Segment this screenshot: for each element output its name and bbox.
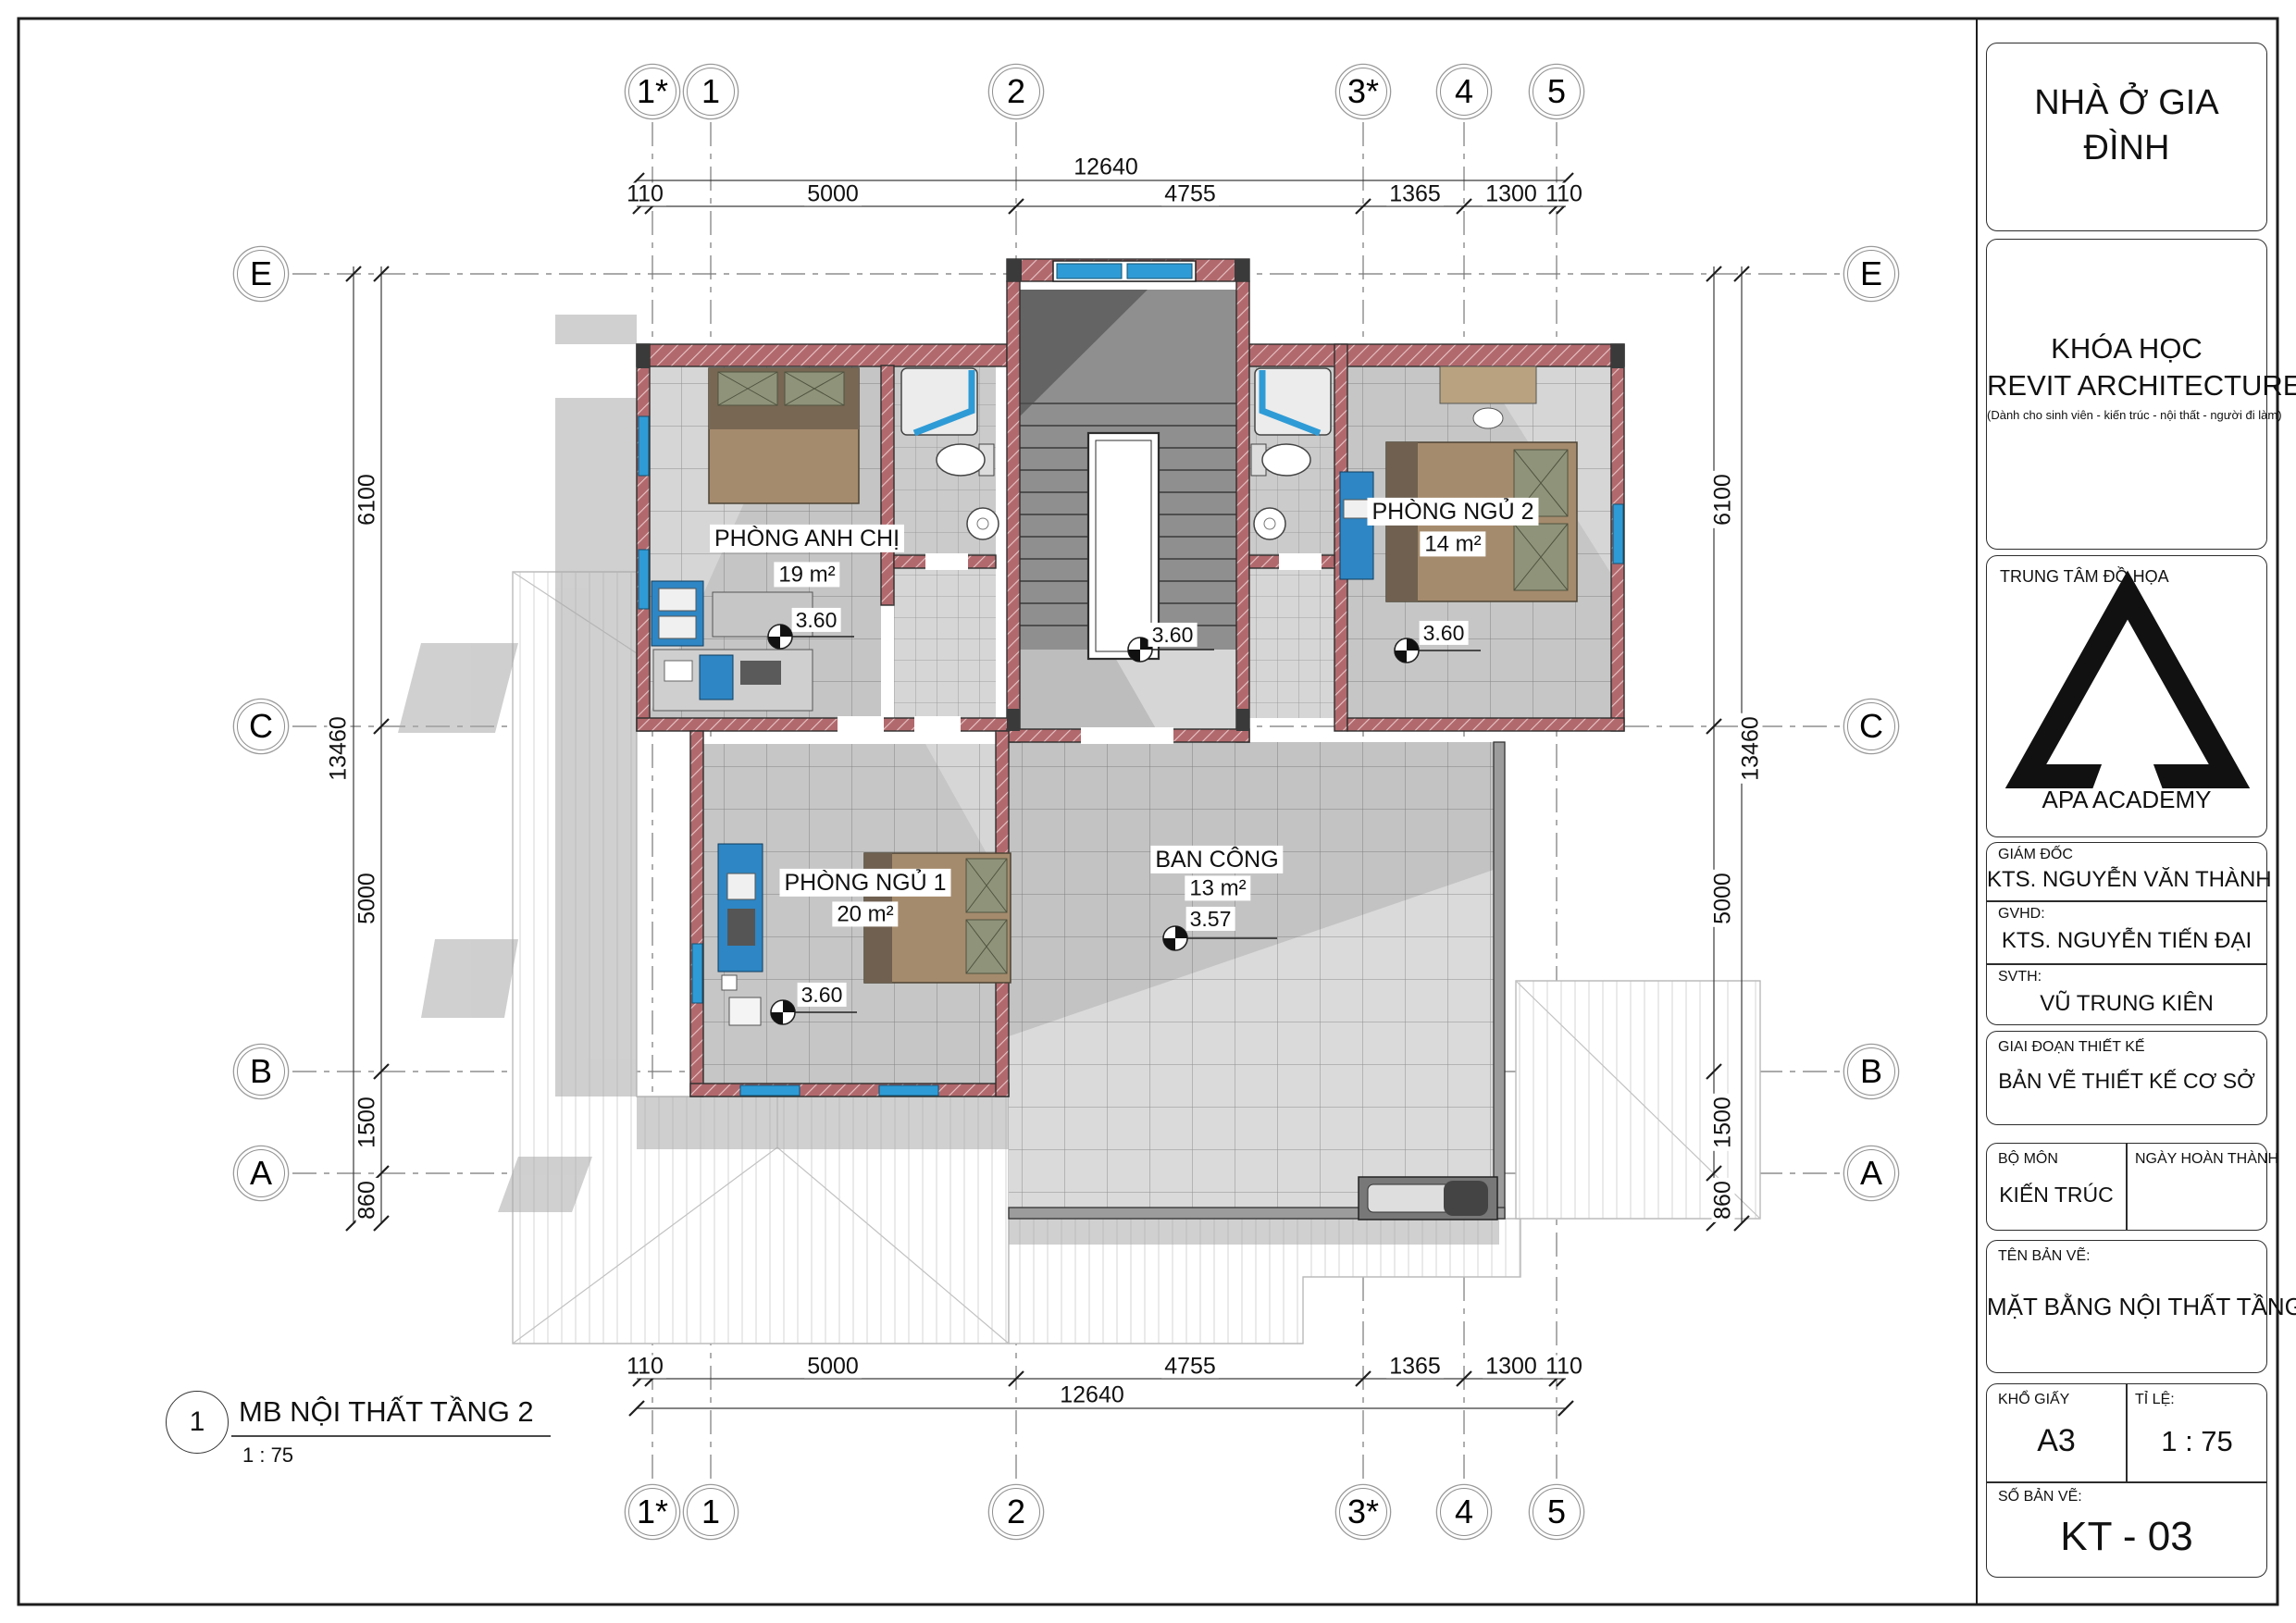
dim-segment: 5000 xyxy=(804,1356,862,1379)
phase-label: GIAI ĐOẠN THIẾT KẾ xyxy=(1998,1039,2145,1056)
grid-bubble-col: 2 xyxy=(992,68,1040,116)
date-label: NGÀY HOÀN THÀNH xyxy=(2135,1151,2278,1168)
number-label: SỐ BẢN VẼ: xyxy=(1998,1489,2082,1505)
grid-bubble-row: C xyxy=(1847,702,1895,750)
grid-bubble-col: 3* xyxy=(1339,68,1387,116)
titleblock-name-box: TÊN BẢN VẼ: MẶT BẰNG NỘI THẤT TẦNG 2 xyxy=(1986,1240,2267,1373)
dim-segment: 110 xyxy=(624,183,666,206)
dim-segment: 4755 xyxy=(1161,183,1219,206)
project-title: NHÀ Ở GIA ĐÌNH xyxy=(1987,81,2266,172)
view-scale: 1 : 75 xyxy=(242,1443,293,1468)
spot-elevation-text: 3.60 xyxy=(1420,621,1469,645)
drawing-sheet: 1* 1 2 3* 4 5 1* 1 2 3* 4 5 E C B A E C … xyxy=(0,0,2296,1623)
titleblock-center-box: TRUNG TÂM ĐỒ HỌA APA ACADEMY xyxy=(1986,555,2267,837)
drawing-number: KT - 03 xyxy=(1987,1514,2266,1560)
grid-bubble-col: 1* xyxy=(628,68,676,116)
grid-bubble-col: 1 xyxy=(687,1488,735,1536)
grid-bubble-col: 1* xyxy=(628,1488,676,1536)
view-title: MB NỘI THẤT TẦNG 2 xyxy=(239,1395,534,1429)
dim-segment: 1365 xyxy=(1386,183,1444,206)
scale-value: 1 : 75 xyxy=(2126,1425,2268,1458)
room-label-area: 20 m² xyxy=(832,901,898,926)
titleblock-course-box: KHÓA HỌC REVIT ARCHITECTURE (Dành cho si… xyxy=(1986,239,2267,550)
floor-plan-drawing xyxy=(0,0,2296,1623)
room-label-name: BAN CÔNG xyxy=(1150,846,1283,873)
dim-segment: 1300 xyxy=(1483,1356,1540,1379)
phase-value: BẢN VẼ THIẾT KẾ CƠ SỞ xyxy=(1987,1069,2266,1094)
titleblock-phase-box: GIAI ĐOẠN THIẾT KẾ BẢN VẼ THIẾT KẾ CƠ SỞ xyxy=(1986,1031,2267,1125)
dim-segment: 5000 xyxy=(804,183,862,206)
dim-segment: 5000 xyxy=(356,870,379,927)
advisor-name: KTS. NGUYỄN TIẾN ĐẠI xyxy=(1987,928,2266,954)
room-label-area: 14 m² xyxy=(1420,531,1485,556)
student-label: SVTH: xyxy=(1998,969,2042,985)
dim-segment: 1500 xyxy=(356,1094,379,1151)
grid-bubble-col: 2 xyxy=(992,1488,1040,1536)
spot-elevation-text: 3.60 xyxy=(1148,623,1198,647)
director-name: KTS. NGUYỄN VĂN THÀNH xyxy=(1987,867,2266,893)
dim-segment: 1365 xyxy=(1386,1356,1444,1379)
grid-bubble-col: 4 xyxy=(1440,1488,1488,1536)
paper-size: A3 xyxy=(1987,1423,2126,1459)
grid-bubble-row: E xyxy=(1847,250,1895,298)
student-name: VŨ TRUNG KIÊN xyxy=(1987,991,2266,1017)
titleblock-project-box: NHÀ Ở GIA ĐÌNH xyxy=(1986,43,2267,231)
dim-segment: 5000 xyxy=(1712,870,1735,927)
dim-total-bottom: 12640 xyxy=(1057,1384,1127,1407)
drawing-name-label: TÊN BẢN VẼ: xyxy=(1998,1248,2091,1265)
titleblock-dept-box: BỘ MÔN NGÀY HOÀN THÀNH KIẾN TRÚC xyxy=(1986,1143,2267,1231)
course-line2: REVIT ARCHITECTURE xyxy=(1987,369,2266,403)
grid-bubble-col: 4 xyxy=(1440,68,1488,116)
dim-segment: 860 xyxy=(1712,1178,1735,1222)
staircase xyxy=(1020,290,1236,730)
spot-elevation-text: 3.57 xyxy=(1186,907,1235,931)
spot-elevation-text: 3.60 xyxy=(798,983,847,1007)
grid-bubble-row: A xyxy=(237,1149,285,1197)
dim-segment: 6100 xyxy=(356,471,379,528)
drawing-name: MẶT BẰNG NỘI THẤT TẦNG 2 xyxy=(1987,1293,2266,1321)
room-label-name: PHÒNG NGỦ 1 xyxy=(779,869,950,897)
paper-label: KHỔ GIẤY xyxy=(1998,1392,2069,1408)
dim-segment: 110 xyxy=(1543,1356,1585,1379)
course-note: (Dành cho sinh viên - kiến trúc - nội th… xyxy=(1987,408,2266,422)
view-title-underline xyxy=(231,1435,551,1437)
room-label-area: 19 m² xyxy=(774,562,839,587)
room-label-name: PHÒNG NGỦ 2 xyxy=(1367,498,1538,526)
dim-segment: 110 xyxy=(624,1356,666,1379)
dim-segment: 1300 xyxy=(1483,183,1540,206)
dim-segment: 4755 xyxy=(1161,1356,1219,1379)
grid-bubble-col: 5 xyxy=(1533,68,1581,116)
dim-segment: 110 xyxy=(1543,183,1585,206)
grid-bubble-row: B xyxy=(1847,1047,1895,1096)
room-label-area: 13 m² xyxy=(1185,875,1250,900)
grid-bubble-row: C xyxy=(237,702,285,750)
dept-label: BỘ MÔN xyxy=(1998,1151,2058,1168)
grid-bubble-row: B xyxy=(237,1047,285,1096)
grid-bubble-col: 1 xyxy=(687,68,735,116)
course-line1: KHÓA HỌC xyxy=(1987,332,2266,365)
titleblock-number-box: KHỔ GIẤY TỈ LỆ: A3 1 : 75 SỐ BẢN VẼ: KT … xyxy=(1986,1383,2267,1578)
dim-segment: 1500 xyxy=(1712,1094,1735,1151)
dim-total-right: 13460 xyxy=(1740,713,1763,784)
grid-bubble-col: 5 xyxy=(1533,1488,1581,1536)
director-label: GIÁM ĐỐC xyxy=(1998,847,2073,863)
titleblock-people-box: GIÁM ĐỐC KTS. NGUYỄN VĂN THÀNH GVHD: KTS… xyxy=(1986,842,2267,1025)
dim-total-left: 13460 xyxy=(328,713,351,784)
grid-bubble-row: A xyxy=(1847,1149,1895,1197)
scale-label: TỈ LỆ: xyxy=(2135,1392,2175,1408)
dim-segment: 6100 xyxy=(1712,471,1735,528)
room-label-name: PHÒNG ANH CHỊ xyxy=(710,525,904,552)
grid-bubble-col: 3* xyxy=(1339,1488,1387,1536)
spot-elevation-text: 3.60 xyxy=(792,608,841,632)
view-number-bubble: 1 xyxy=(166,1391,229,1454)
dept-value: KIẾN TRÚC xyxy=(1987,1183,2126,1208)
dim-segment: 860 xyxy=(356,1178,379,1222)
advisor-label: GVHD: xyxy=(1998,906,2045,923)
dim-total-top: 12640 xyxy=(1071,156,1141,180)
grid-bubble-row: E xyxy=(237,250,285,298)
center-name: APA ACADEMY xyxy=(1987,786,2266,814)
